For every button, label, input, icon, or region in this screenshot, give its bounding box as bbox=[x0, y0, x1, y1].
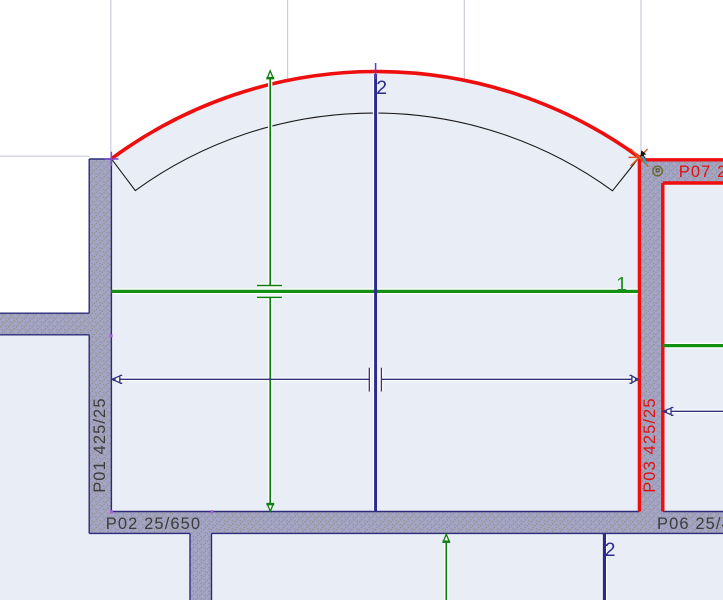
svg-text:2: 2 bbox=[605, 539, 616, 561]
svg-text:2: 2 bbox=[376, 77, 387, 99]
svg-text:P07 25: P07 25 bbox=[679, 163, 723, 181]
svg-text:P01 425/25: P01 425/25 bbox=[91, 397, 109, 492]
svg-text:P03 425/25: P03 425/25 bbox=[641, 397, 659, 492]
svg-text:P02 25/650: P02 25/650 bbox=[106, 515, 201, 533]
svg-text:P06 25/45: P06 25/45 bbox=[657, 515, 723, 533]
svg-text:1: 1 bbox=[616, 274, 627, 296]
